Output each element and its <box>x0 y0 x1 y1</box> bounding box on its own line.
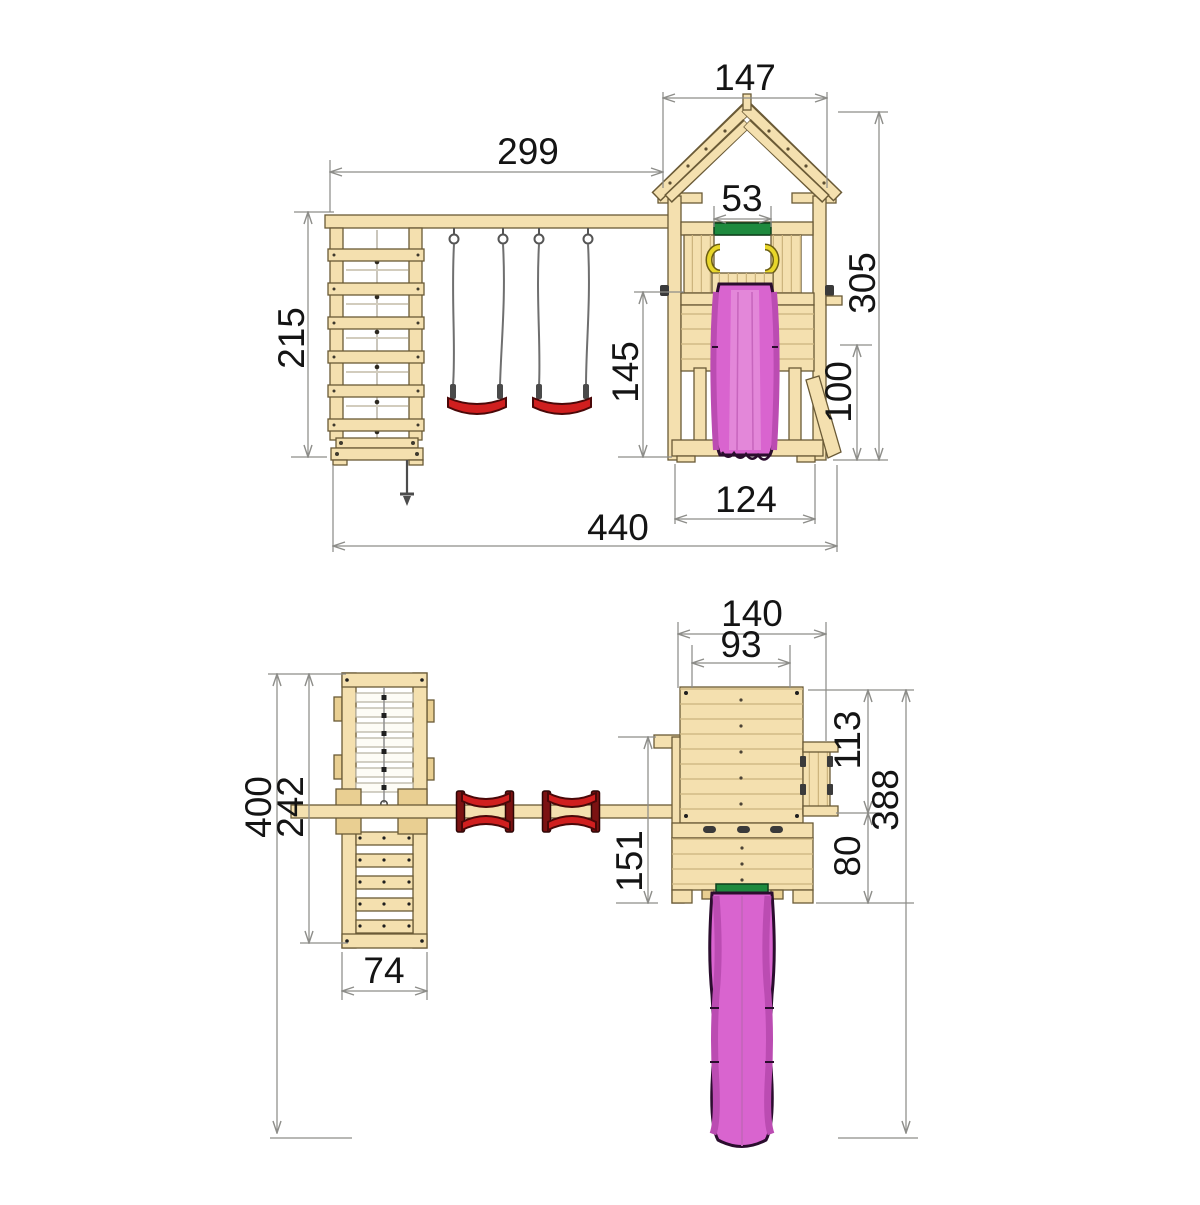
plan-view: 140 93 400 242 <box>238 593 918 1147</box>
doorway-bar-green <box>714 223 771 235</box>
swing-set-front <box>448 228 593 414</box>
dim-beam-span: 299 <box>330 131 663 212</box>
dim-label-beam-to-front-depth: 151 <box>609 830 650 892</box>
dim-label-depth-with-slide: 388 <box>865 769 906 831</box>
technical-drawing: 147 299 53 305 <box>0 0 1200 1200</box>
tower-plan <box>654 687 838 1147</box>
dim-tower-base-width: 124 <box>675 464 815 524</box>
dim-label-climbing-frame-width: 74 <box>363 950 404 991</box>
dim-climbing-frame-height: 215 <box>271 212 334 457</box>
dim-label-climbing-frame-height: 215 <box>271 307 312 369</box>
swing-hangers <box>450 228 593 244</box>
dim-label-total-width: 440 <box>587 507 649 548</box>
dim-label-total-height: 305 <box>842 252 883 314</box>
dim-beam-to-front-depth: 151 <box>609 737 658 903</box>
swing-seat-right <box>533 398 591 414</box>
dim-total-depth: 400 <box>238 674 352 1138</box>
dim-label-porch-depth: 80 <box>827 835 868 876</box>
swing-seat-left <box>448 398 506 414</box>
dim-label-tower-upper-depth: 113 <box>827 711 868 770</box>
dim-climbing-frame-width: 74 <box>342 950 427 1000</box>
dim-label-tower-base-width: 124 <box>715 479 777 520</box>
climbing-frame-front <box>328 228 424 506</box>
dim-label-brace-height: 100 <box>818 361 859 423</box>
slide-plan <box>710 893 775 1147</box>
dim-label-doorway-bar-width: 53 <box>721 178 762 219</box>
dim-label-platform-inner-width: 93 <box>720 624 761 665</box>
grab-handles-yellow <box>709 247 776 273</box>
swing-beam-front <box>325 215 672 228</box>
slide-front <box>712 284 778 460</box>
rope-connectors <box>450 384 589 399</box>
dim-label-platform-height: 145 <box>605 341 646 403</box>
dim-label-climbing-frame-depth: 242 <box>270 776 311 838</box>
dim-label-beam-span: 299 <box>497 131 559 172</box>
front-elevation-view: 147 299 53 305 <box>271 57 888 552</box>
playset-technical-drawing-page: 147 299 53 305 <box>0 0 1200 1200</box>
tower-front <box>656 94 842 462</box>
dim-doorway-bar-width: 53 <box>714 178 771 227</box>
ground-anchor-rope <box>400 460 414 506</box>
dim-label-roof-width: 147 <box>714 57 776 98</box>
plan-view-dimensions: 140 93 400 242 <box>238 593 918 1138</box>
